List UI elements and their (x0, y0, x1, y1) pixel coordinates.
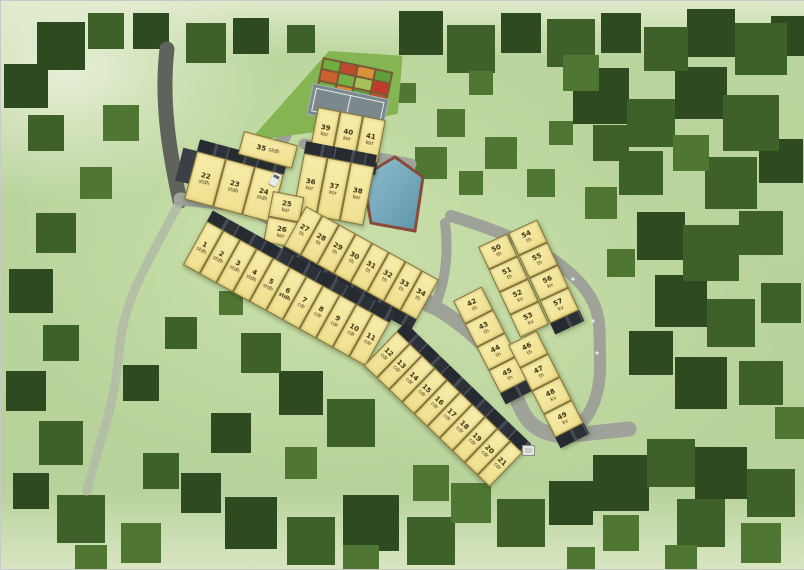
lot-type: th (538, 372, 545, 380)
site-plan-canvas: 22stdh23stdh24stdh 35stdh 39kor40kor41ko… (0, 0, 804, 570)
lot-type: kv (527, 319, 535, 327)
gazebo (522, 445, 535, 456)
lot-type: stdh (268, 147, 280, 156)
lot-type: th (414, 294, 421, 302)
lot-type: kor (281, 207, 290, 214)
lot-type: th (298, 230, 305, 238)
lot-type: th (506, 274, 513, 282)
garden-plot (320, 70, 337, 82)
lot-type: th (348, 258, 355, 266)
lot-type: th (526, 349, 533, 357)
lot-type: th (495, 351, 502, 359)
connector-road (437, 223, 447, 301)
lot-type: kv (549, 395, 557, 403)
garden-plot (357, 67, 374, 79)
lot-type: kv (546, 282, 554, 290)
west-path (87, 201, 180, 491)
lot-type: kor (276, 232, 285, 239)
garden-plot (372, 81, 389, 93)
lot-type: th (314, 239, 321, 247)
garden-plot (354, 78, 371, 90)
lot-type: kor (305, 184, 314, 191)
lot-number: 35 (256, 143, 267, 152)
lot-type: th (471, 305, 478, 313)
lot-type: kor (320, 131, 329, 138)
lot-type: kor (329, 189, 338, 196)
lot-type: th (506, 374, 513, 382)
lot-type: kor (352, 194, 361, 201)
lot-type: th (526, 237, 533, 245)
lot-type: kv (557, 305, 565, 313)
lot-type: th (331, 248, 338, 256)
garden-plot (340, 63, 357, 75)
lot-type: th (496, 251, 503, 259)
lot-type: kor (343, 135, 352, 142)
lot-type: kor (365, 139, 374, 146)
garden-plot (374, 70, 391, 82)
lot-type: th (364, 267, 371, 275)
lot-type: kv (516, 296, 524, 304)
lot-type: th (381, 276, 388, 284)
lot-type: th (483, 328, 490, 336)
lot-type: th (536, 260, 543, 268)
garden-plot (323, 59, 340, 71)
lot-type: kv (561, 418, 569, 426)
lot-type: th (397, 285, 404, 293)
garden-plot (337, 74, 354, 86)
